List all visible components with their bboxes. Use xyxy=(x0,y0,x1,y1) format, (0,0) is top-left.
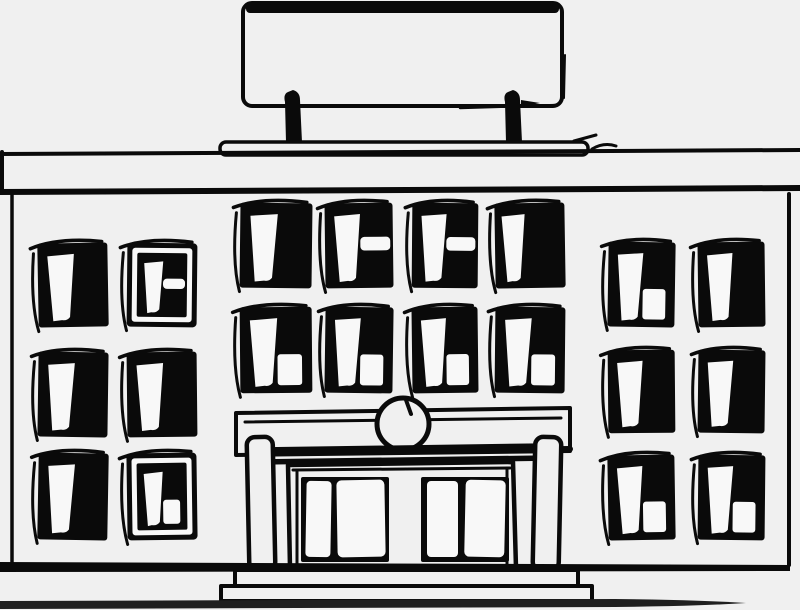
sign-right-sketch-line xyxy=(564,55,565,98)
cornice-bottom-line xyxy=(0,188,800,192)
window-center-r1c3 xyxy=(405,200,479,292)
window-center-r2c2 xyxy=(317,304,393,398)
sign-post-right xyxy=(504,90,522,142)
window-right-r1c1 xyxy=(600,239,675,332)
window-left-r1c1 xyxy=(30,240,109,332)
entrance-steps xyxy=(221,570,592,601)
window-left-r3c2 xyxy=(119,450,197,545)
door-left-leaf-1 xyxy=(305,481,331,557)
window-center-r2c1 xyxy=(233,304,313,397)
building-scene: Hand-drawn black ink illustration of a s… xyxy=(0,0,800,610)
door-frame-inner-top xyxy=(293,468,510,470)
door-right-leaf-1 xyxy=(427,481,458,557)
window-right-r1c2 xyxy=(690,239,765,331)
window-center-r2c4 xyxy=(488,304,566,397)
step-upper xyxy=(235,570,578,586)
window-center-r2c3 xyxy=(404,304,478,397)
entrance-column-right xyxy=(533,437,562,571)
window-right-r2c1 xyxy=(601,347,676,437)
window-left-r2c2 xyxy=(120,349,198,441)
door-left xyxy=(301,477,389,562)
sign-top-band xyxy=(246,2,559,13)
building-illustration: Hand-drawn black ink illustration of a s… xyxy=(0,0,800,610)
window-left-r3c1 xyxy=(30,450,109,545)
window-left-r1c2 xyxy=(120,240,198,331)
window-center-r1c4 xyxy=(487,200,565,293)
door-left-leaf-2 xyxy=(336,480,385,558)
step-lower xyxy=(221,586,592,601)
clock-ornament xyxy=(377,398,429,450)
window-center-r1c2 xyxy=(317,200,393,292)
entrance-column-left xyxy=(247,437,276,571)
window-center-r1c1 xyxy=(232,200,312,293)
window-left-r2c1 xyxy=(30,349,108,442)
door-right xyxy=(421,477,509,562)
door-right-leaf-2 xyxy=(464,480,506,558)
sign-post-left xyxy=(284,90,302,142)
window-right-r3c1 xyxy=(600,452,675,545)
window-right-r3c2 xyxy=(691,452,766,544)
window-right-r2c2 xyxy=(690,347,765,437)
